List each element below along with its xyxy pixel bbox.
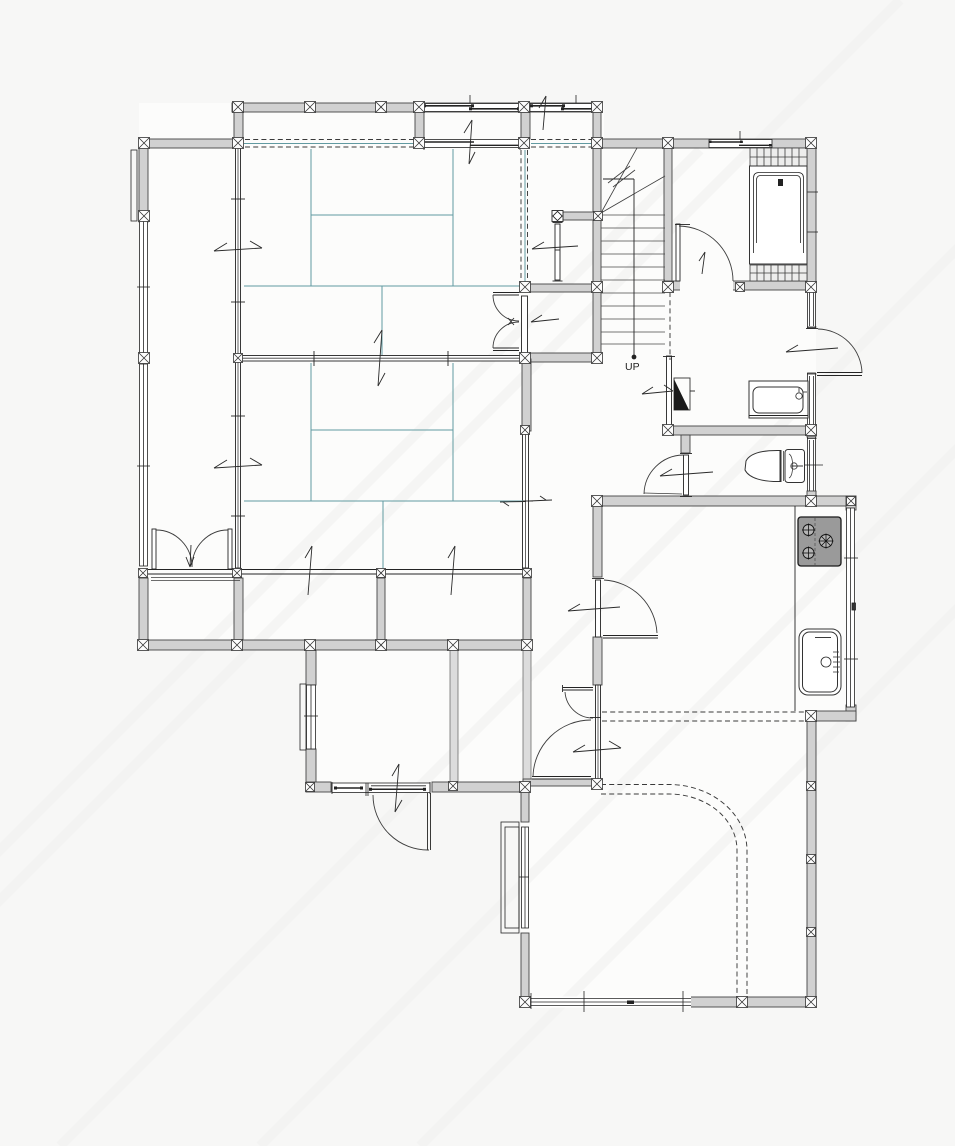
svg-text:UP: UP <box>625 361 640 373</box>
